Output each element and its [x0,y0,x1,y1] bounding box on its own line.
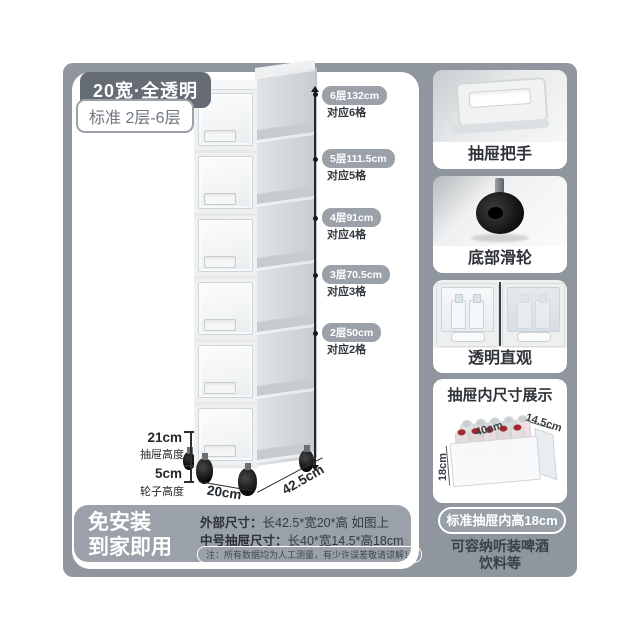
bin-front [450,436,542,488]
cabinet-side-face [257,68,317,466]
caster-hub [488,207,503,219]
drawer-2 [194,153,257,216]
clear-drawer-right [502,283,565,347]
inner-height-badge: 标准抽屉内高18cm [438,507,566,534]
level-badge-5: 5层111.5cm [322,149,395,168]
tick [184,465,194,467]
wheel-height-value: 5cm [146,466,182,481]
divider [499,282,501,346]
card-label-wheel: 底部滑轮 [433,244,567,268]
bottle-icon [469,300,484,329]
drawer-5 [194,342,257,405]
clear-window [441,287,494,332]
card-label-transparent: 透明直观 [433,344,567,368]
card-label-handle: 抽屉把手 [433,140,567,164]
measure-dot [313,331,318,336]
level-note-6: 对应6格 [327,104,387,120]
capacity-caption-line2: 饮料等 [433,553,567,573]
level-note-2: 对应2格 [327,341,387,357]
drawer-3 [194,216,257,279]
height-bracket [190,432,192,482]
wheel-photo [433,176,567,246]
arrow-down-icon [311,465,319,471]
caster-wheel [238,468,257,496]
cabinet-front-face [194,80,257,468]
slogan-line2: 到家即用 [88,535,172,560]
card-transparent-view: 透明直观 [433,280,567,373]
product-detail-image: 20宽·全透明 标准 2层-6层 6层132cm 对应6格 5层111.5cm … [0,0,640,640]
inner-dims-title: 抽屉内尺寸展示 [433,384,567,405]
bottle-icon [451,300,466,329]
handle-photo [433,70,567,142]
drawer-handle-icon [204,256,236,268]
drawer-4 [194,279,257,342]
drawer-height-value: 21cm [140,430,182,445]
drawer-handle-icon [204,130,236,142]
drawer-height-label: 抽屉高度 [132,446,184,462]
slogan-line1: 免安装 [88,510,172,535]
level-badge-3: 3层70.5cm [322,265,390,284]
dim-height: 18cm [437,453,449,481]
measure-dot [313,216,318,221]
drawer-slot [517,332,551,342]
outer-size-label: 外部尺寸： [200,516,263,530]
measure-dot [313,92,318,97]
layers-tag: 标准 2层-6层 [76,99,194,133]
drawer-handle-icon [204,319,236,331]
outer-size-value: 长42.5*宽20*高 如图上 [263,516,389,530]
drawer-handle-icon [204,382,236,394]
measurement-note: 注：所有数据均为人工测量，有少许误差敬请谅解！ [197,546,422,563]
wheel-height-label: 轮子高度 [132,483,184,499]
bottle-icon [517,300,532,329]
height-measure-line [314,90,316,467]
level-note-5: 对应5格 [327,167,387,183]
card-inner-dimensions: 抽屉内尺寸展示 40cm 14.5cm 18cm [433,379,567,503]
card-bottom-wheel: 底部滑轮 [433,176,567,273]
drawer-slot [451,332,485,342]
measure-dot [313,273,318,278]
clear-drawer-left [436,283,499,347]
tick [184,431,194,433]
level-badge-2: 2层50cm [322,323,381,342]
level-note-3: 对应3格 [327,283,387,299]
frosted-window [507,287,560,332]
drawer-handle-icon [204,445,236,457]
level-badge-6: 6层132cm [322,86,387,105]
level-badge-4: 4层91cm [322,208,381,227]
transparent-photo [433,280,567,348]
card-drawer-handle: 抽屉把手 [433,70,567,169]
level-note-4: 对应4格 [327,226,387,242]
drawer-handle-icon [204,193,236,205]
caster-shadow [471,234,529,242]
slogan: 免安装 到家即用 [88,510,172,560]
measure-dot [313,157,318,162]
bottle-icon [535,300,550,329]
tick [184,481,194,483]
outer-size-row: 外部尺寸：长42.5*宽20*高 如图上 [200,512,389,531]
